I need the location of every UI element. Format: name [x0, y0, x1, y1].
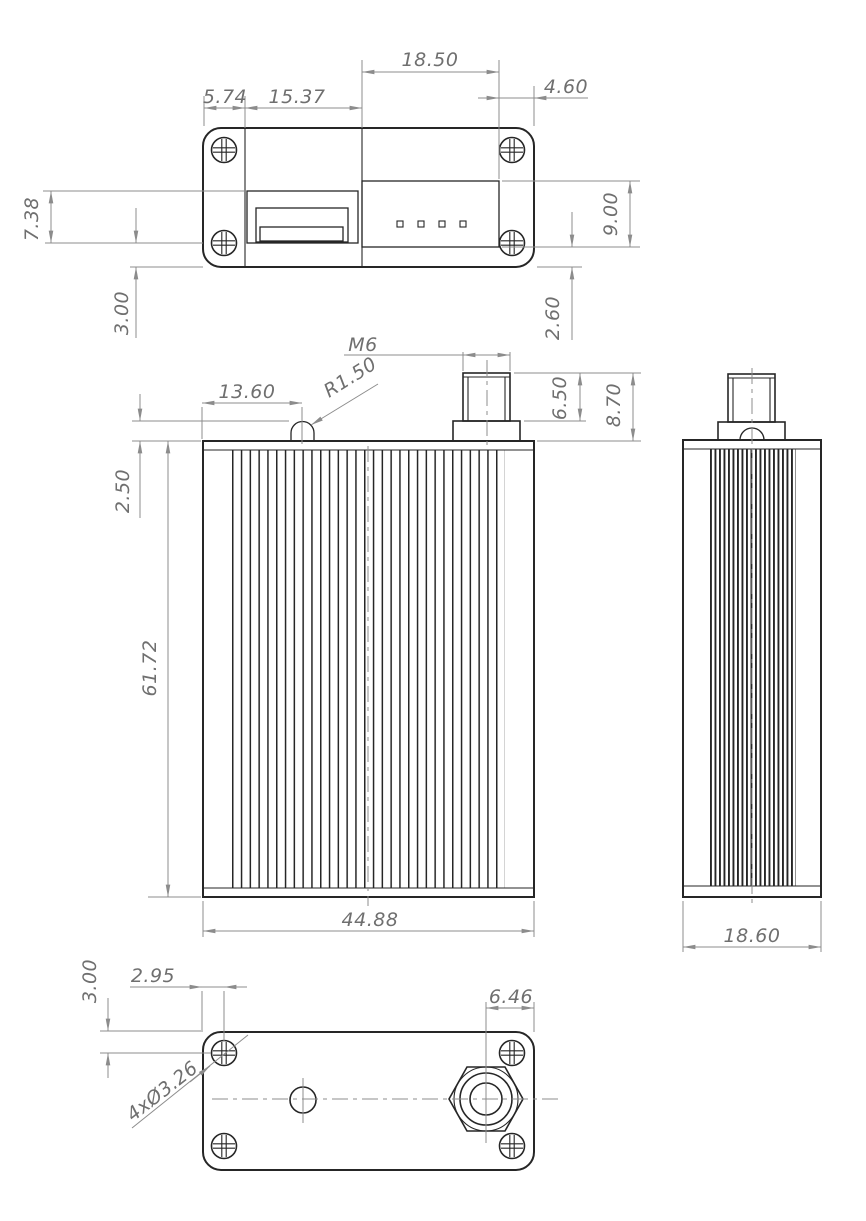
dim-7-38-label: 7.38: [21, 197, 43, 241]
screw-hole-bottom-right: [500, 1134, 525, 1159]
dim-2-95: 2.95: [130, 965, 247, 987]
pin-header: [362, 181, 499, 247]
dim-hole-callout: 4xØ3.26: [123, 1035, 248, 1128]
dim-6-50: 6.50: [549, 373, 580, 421]
top-view-body: [203, 128, 534, 267]
dim-4-60-label: 4.60: [544, 76, 588, 98]
dim-hole-callout-label: 4xØ3.26: [123, 1057, 203, 1126]
dim-18-50-label: 18.50: [402, 49, 459, 71]
dim-9-00: 9.00: [600, 181, 630, 247]
dim-2-50-label: 2.50: [112, 469, 134, 513]
dim-7-38: 7.38: [21, 191, 51, 243]
dim-61-72-label: 61.72: [139, 640, 161, 697]
screw-top-right: [500, 138, 525, 163]
dim-18-50: 18.50: [362, 49, 499, 72]
screw-hole-top-right: [500, 1041, 525, 1066]
dim-18-60-label: 18.60: [724, 925, 781, 947]
dim-m6-label: M6: [348, 334, 377, 356]
dim-6-46-label: 6.46: [489, 986, 533, 1008]
heatsink-fins-side: [710, 449, 796, 886]
dim-3-00-bottom-label: 3.00: [79, 959, 101, 1003]
dim-8-70: 8.70: [603, 373, 633, 441]
dim-2-50: 2.50: [112, 394, 140, 518]
dim-3-00-top: 3.00: [111, 208, 136, 338]
dim-5-74-label: 5.74: [203, 86, 247, 108]
dim-3-00-top-label: 3.00: [111, 291, 133, 335]
dim-3-00-bottom: 3.00: [79, 959, 108, 1078]
dim-6-50-label: 6.50: [549, 376, 571, 420]
screw-top-left: [212, 138, 237, 163]
dim-13-60: 13.60: [202, 381, 302, 403]
dim-r1-50-label: R1.50: [320, 353, 381, 402]
dim-15-37: 15.37: [245, 86, 362, 108]
dim-2-60-label: 2.60: [542, 296, 564, 340]
bottom-view: 3.00 2.95 6.46 4xØ3.26: [79, 959, 558, 1170]
dim-4-60: 4.60: [478, 76, 588, 98]
dim-9-00-label: 9.00: [600, 192, 622, 236]
front-view: 13.60 R1.50 2.50 61.72 M6 6.50 8.70: [112, 334, 641, 937]
cad-drawing: 5.74 15.37 18.50 4.60 7.38 3.00 9.00: [0, 0, 866, 1221]
screw-bottom-left: [212, 231, 237, 256]
dim-5-74: 5.74: [203, 86, 247, 108]
screw-bottom-right: [500, 231, 525, 256]
dim-r1-50: R1.50: [311, 353, 381, 425]
dim-44-88-label: 44.88: [342, 909, 399, 931]
dim-18-60: 18.60: [683, 925, 821, 947]
screw-hole-bottom-left: [212, 1134, 237, 1159]
bottom-view-body: [203, 1032, 534, 1170]
pin: [460, 221, 466, 227]
dim-15-37-label: 15.37: [269, 86, 326, 108]
pin: [397, 221, 403, 227]
dim-2-60: 2.60: [542, 212, 572, 340]
dim-44-88: 44.88: [203, 909, 534, 931]
dim-61-72: 61.72: [139, 441, 168, 897]
dim-6-46: 6.46: [486, 986, 534, 1008]
top-view: 5.74 15.37 18.50 4.60 7.38 3.00 9.00: [21, 49, 640, 340]
dim-13-60-label: 13.60: [219, 381, 276, 403]
dim-8-70-label: 8.70: [603, 383, 625, 427]
pin: [439, 221, 445, 227]
dim-2-95-label: 2.95: [131, 965, 175, 987]
drawing-sheet: 5.74 15.37 18.50 4.60 7.38 3.00 9.00: [0, 0, 866, 1221]
side-view: 18.60: [683, 368, 821, 952]
usb-connector: [247, 191, 358, 243]
dim-m6: M6: [344, 334, 510, 356]
pin: [418, 221, 424, 227]
